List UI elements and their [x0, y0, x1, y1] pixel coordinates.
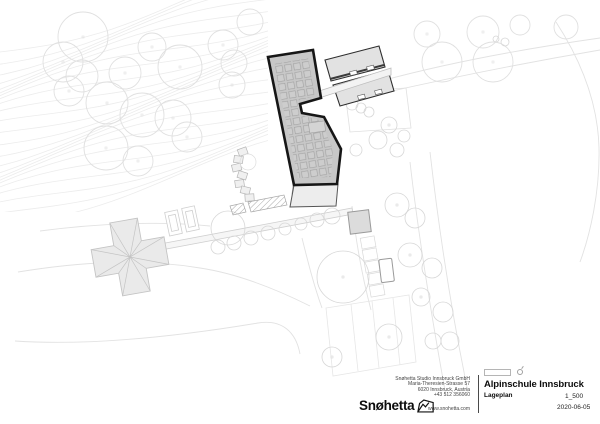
trees-large-circle	[473, 42, 513, 82]
parcel-line	[372, 301, 379, 368]
steps-rect	[245, 194, 254, 202]
tree-center-mark	[396, 204, 398, 206]
contour-line	[0, 37, 292, 124]
roads-path	[18, 262, 310, 306]
trees-small-circle	[425, 333, 441, 349]
stalls-rect	[362, 248, 378, 261]
title-block-keyplan-icon	[484, 369, 511, 376]
north-symbol-icon	[517, 369, 523, 375]
tree-center-mark	[331, 356, 333, 358]
trees-large-circle	[554, 15, 578, 39]
trees-small-circle	[381, 117, 397, 133]
trees-small-circle	[356, 103, 366, 113]
drive-pads-rect	[182, 206, 200, 232]
contour-line	[0, 107, 292, 189]
parcel-line	[393, 298, 400, 365]
trees-small-circle	[350, 144, 362, 156]
trees-large-circle	[138, 33, 166, 61]
trees-small-circle	[433, 302, 453, 322]
tree-center-mark	[106, 102, 108, 104]
drawing-title: Lageplan	[484, 392, 513, 399]
trees-large-circle	[467, 16, 499, 48]
contour-line	[0, 17, 292, 101]
tree-center-mark	[342, 276, 344, 278]
drawing-scale: 1_500	[565, 393, 583, 400]
snohetta-logo-text: Snøhetta	[359, 398, 414, 413]
tree-center-mark	[151, 46, 153, 48]
contour-line	[0, 30, 292, 110]
stalls-rect	[360, 236, 376, 249]
trees-large-circle	[109, 57, 141, 89]
site-plan-page: Alpinschule Innsbruck Lageplan 1_500 202…	[0, 0, 600, 424]
tree-center-mark	[388, 336, 390, 338]
tree-center-mark	[409, 254, 411, 256]
hatch-strips-polygon	[230, 203, 246, 215]
tree-center-mark	[68, 90, 70, 92]
contour-line	[0, 0, 292, 55]
tree-center-mark	[222, 44, 224, 46]
steps-rect	[240, 186, 250, 195]
tree-center-mark	[426, 33, 428, 35]
mountain-icon	[417, 399, 434, 413]
tree-center-mark	[124, 72, 126, 74]
tree-center-mark	[482, 31, 484, 33]
main-building-rect	[308, 121, 325, 133]
trees-small-circle	[398, 130, 410, 142]
tree-center-mark	[388, 124, 390, 126]
trees-small-circle	[422, 258, 442, 278]
trees-large-circle	[123, 146, 153, 176]
outbuildings-rect	[348, 210, 372, 234]
tree-center-mark	[492, 61, 494, 63]
trees-small-circle	[441, 332, 459, 350]
trees-large-circle	[54, 76, 84, 106]
title-block-divider	[478, 375, 479, 413]
drive-pads-rect	[165, 210, 183, 236]
steps-rect	[237, 147, 248, 157]
layer-barns	[316, 46, 394, 106]
main-building-polygon	[290, 184, 338, 207]
tree-center-mark	[420, 296, 422, 298]
layer-drive-pads	[165, 206, 200, 236]
outbuildings-rect	[379, 258, 395, 282]
contour-line	[0, 77, 292, 171]
layer-steps	[231, 147, 256, 202]
contour-line	[0, 0, 292, 89]
contour-line	[0, 64, 292, 159]
tree-center-mark	[179, 66, 181, 68]
trees-small-circle	[412, 288, 430, 306]
stalls-rect	[369, 284, 385, 297]
layer-chalet	[87, 214, 173, 300]
trees-large-circle	[422, 42, 462, 82]
roads-path	[556, 22, 599, 262]
trees-large-circle	[237, 9, 263, 35]
trees-small-circle	[364, 107, 374, 117]
trees-small-circle	[317, 251, 369, 303]
trees-small-circle	[398, 243, 422, 267]
trees-large-circle	[510, 15, 530, 35]
parcel-line	[351, 304, 358, 371]
steps-rect	[237, 171, 248, 180]
site-plan-drawing	[0, 0, 600, 424]
trees-small-circle	[390, 143, 404, 157]
snohetta-logo: Snøhetta	[359, 398, 434, 413]
trees-small-circle	[385, 193, 409, 217]
tree-center-mark	[105, 147, 107, 149]
tree-center-mark	[186, 136, 188, 138]
contour-line	[0, 112, 292, 192]
trees-small-circle	[227, 236, 241, 250]
drawing-date: 2020-06-05	[557, 404, 590, 411]
trees-small-circle	[369, 131, 387, 149]
trees-small-circle	[501, 38, 509, 46]
roads-path	[430, 152, 468, 392]
project-title: Alpinschule Innsbruck	[484, 379, 584, 390]
roads-path	[15, 322, 300, 354]
trees-large-circle	[172, 122, 202, 152]
trees-small-circle	[376, 324, 402, 350]
trees-small-circle	[405, 208, 425, 228]
trees-large-circle	[86, 82, 128, 124]
tree-center-mark	[137, 160, 139, 162]
roads-path	[410, 162, 446, 396]
tree-center-mark	[62, 61, 64, 63]
trees-large-circle	[158, 45, 202, 89]
roads-path	[302, 238, 322, 308]
studio-address: Snøhetta Studio Innsbruck GmbH Maria-The…	[395, 377, 470, 399]
tree-center-mark	[441, 61, 443, 63]
